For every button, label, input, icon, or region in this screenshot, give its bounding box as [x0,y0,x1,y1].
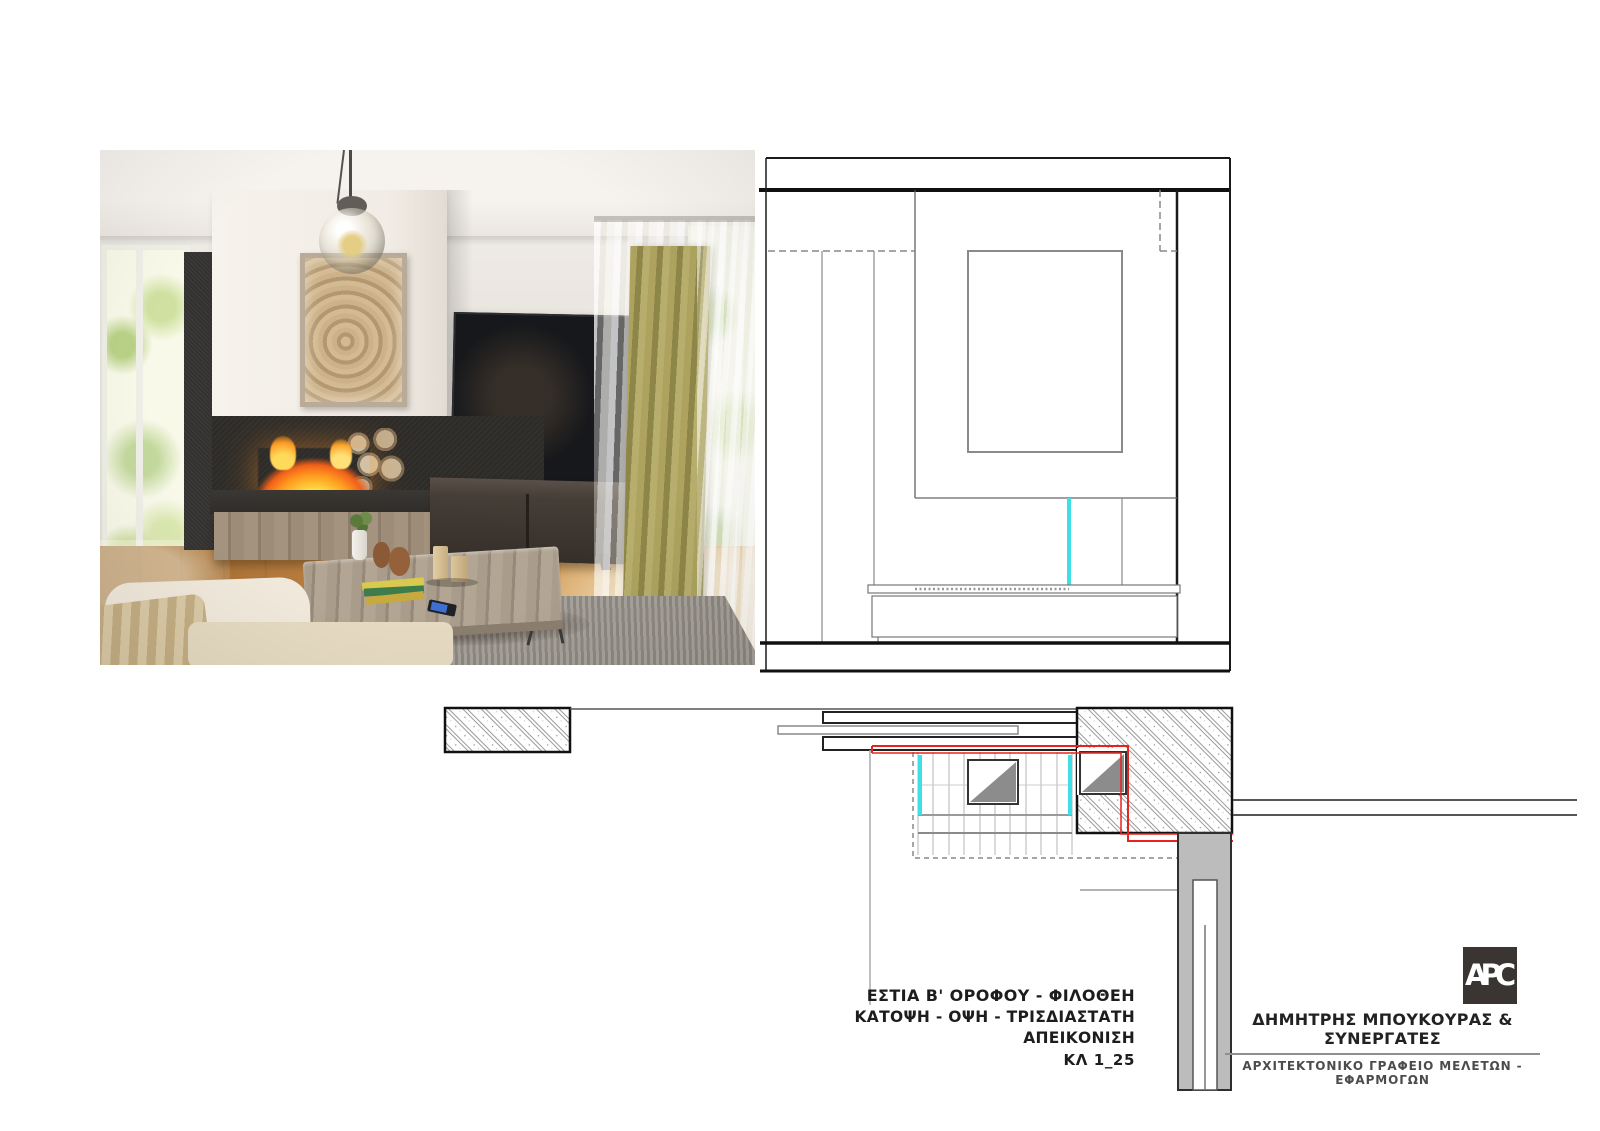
plan-sliding-panel [778,726,1018,734]
firm-logo-text: APC [1465,958,1509,992]
drawing-subtitle: ΚΑΤΟΨΗ - ΟΨΗ - ΤΡΙΣΔΙΑΣΤΑΤΗ ΑΠΕΙΚΟΝΙΣΗ [790,1007,1135,1050]
drawing-title: ΕΣΤΙΑ Β' ΟΡΟΦΟΥ - ΦΙΛΟΘΕΗ [790,985,1135,1007]
firm-subtitle: ΑΡΧΙΤΕΚΤΟΝΙΚΟ ΓΡΑΦΕΙΟ ΜΕΛΕΤΩΝ - ΕΦΑΡΜΟΓΩ… [1225,1059,1540,1087]
elevation-bench [872,596,1177,637]
drawing-scale: ΚΛ 1_25 [790,1050,1135,1071]
firm-logo: APC [1463,947,1517,1004]
plan-sliding-panel [823,737,1077,750]
firm-name: ΔΗΜΗΤΡΗΣ ΜΠΟΥΚΟΥΡΑΣ & ΣΥΝΕΡΓΑΤΕΣ [1225,1010,1540,1048]
plan-sliding-panel [823,712,1077,723]
drawing-sheet: ΕΣΤΙΑ Β' ΟΡΟΦΟΥ - ΦΙΛΟΘΕΗ ΚΑΤΟΨΗ - ΟΨΗ -… [0,0,1600,1131]
title-block: ΕΣΤΙΑ Β' ΟΡΟΦΟΥ - ΦΙΛΟΘΕΗ ΚΑΤΟΨΗ - ΟΨΗ -… [790,985,1135,1071]
plan-wall-hatch-left [445,708,570,752]
elevation-artwork-niche [968,251,1122,452]
technical-drawings [0,0,1600,1131]
firm-divider-line [1225,1053,1540,1055]
firm-block: ΔΗΜΗΤΡΗΣ ΜΠΟΥΚΟΥΡΑΣ & ΣΥΝΕΡΓΑΤΕΣ ΑΡΧΙΤΕΚ… [1225,1010,1540,1087]
elevation-drawing [759,158,1230,671]
